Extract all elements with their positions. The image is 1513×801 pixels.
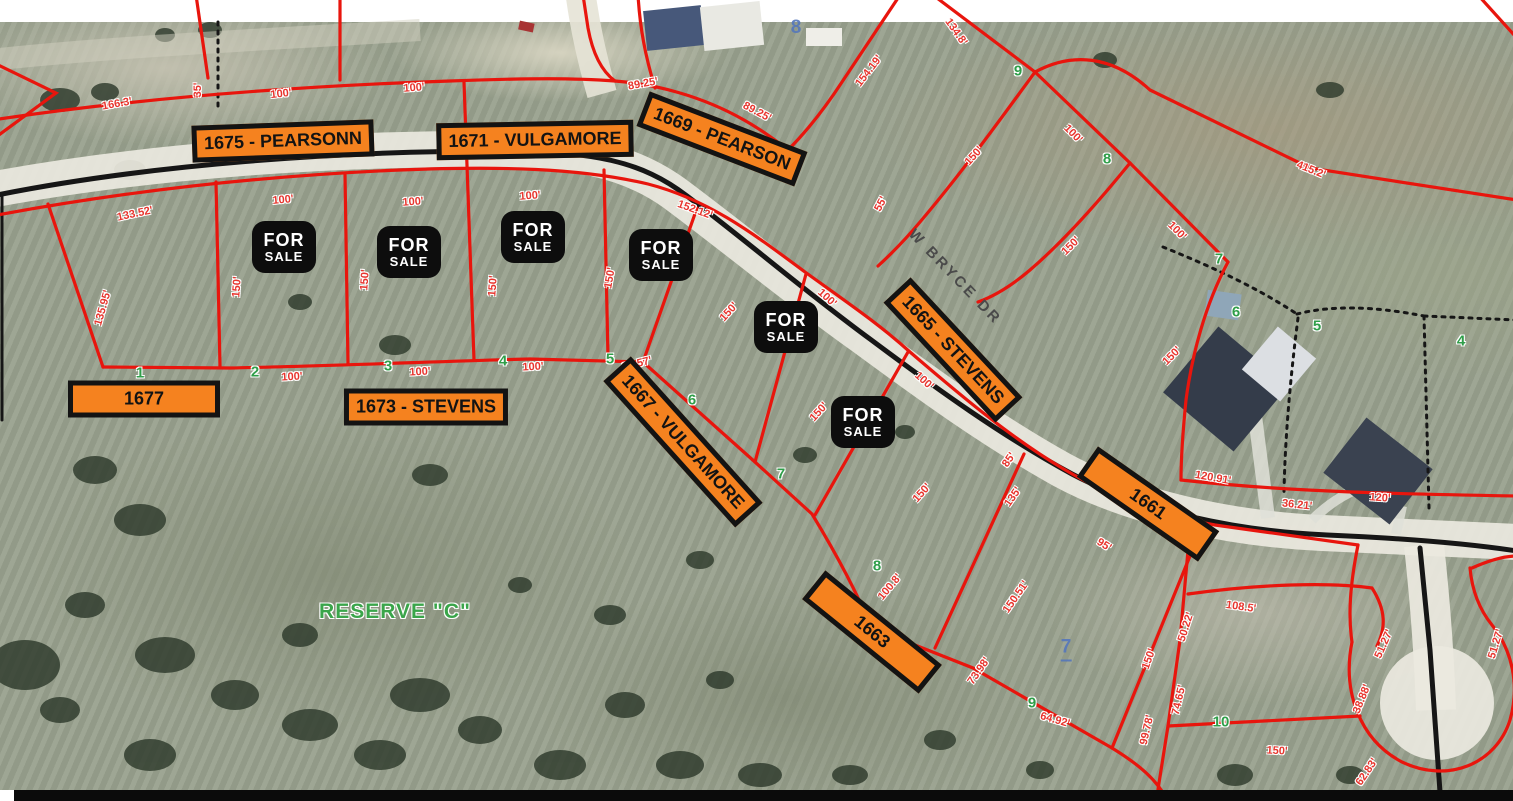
for-sale-line2: SALE [844, 425, 883, 439]
for-sale-sign: FORSALE [377, 226, 441, 278]
address-badge: 1675 - PEARSONN [191, 119, 374, 162]
for-sale-sign: FORSALE [629, 229, 693, 281]
for-sale-line1: FOR [843, 406, 884, 425]
address-badge: 1673 - STEVENS [344, 389, 508, 426]
plat-map-screenshot: W BRYCE DR RESERVE "C" 166.3'35'100'100'… [0, 0, 1513, 801]
for-sale-line1: FOR [513, 221, 554, 240]
for-sale-line2: SALE [767, 330, 806, 344]
address-badge: 1669 - PEARSON [636, 91, 807, 186]
address-badge: 1665 - STEVENS [884, 277, 1023, 422]
address-badge: 1677 [68, 381, 220, 418]
for-sale-line1: FOR [641, 239, 682, 258]
address-badge: 1661 [1077, 446, 1219, 561]
for-sale-sign: FORSALE [754, 301, 818, 353]
for-sale-sign: FORSALE [252, 221, 316, 273]
for-sale-line2: SALE [514, 240, 553, 254]
badge-layer: FORSALEFORSALEFORSALEFORSALEFORSALEFORSA… [0, 0, 1513, 801]
for-sale-line2: SALE [642, 258, 681, 272]
address-badge: 1667 - VULGAMORE [603, 356, 762, 527]
bottom-left-margin [0, 790, 14, 801]
address-badge: 1671 - VULGAMORE [436, 120, 634, 160]
for-sale-line2: SALE [390, 255, 429, 269]
address-badge: 1663 [802, 570, 942, 693]
for-sale-line1: FOR [264, 231, 305, 250]
for-sale-line2: SALE [265, 250, 304, 264]
for-sale-line1: FOR [766, 311, 807, 330]
for-sale-line1: FOR [389, 236, 430, 255]
for-sale-sign: FORSALE [501, 211, 565, 263]
for-sale-sign: FORSALE [831, 396, 895, 448]
bottom-border-bar [14, 790, 1513, 801]
